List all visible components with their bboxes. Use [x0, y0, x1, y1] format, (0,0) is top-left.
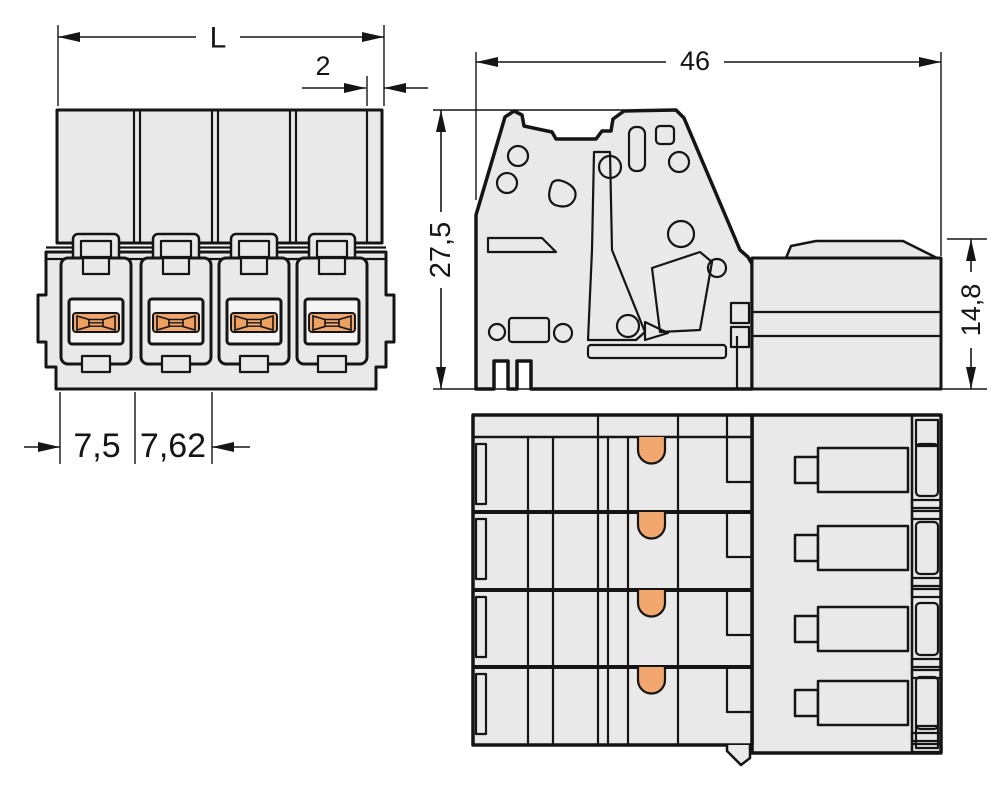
side-view-body	[476, 110, 752, 389]
dim-label-L: L	[210, 22, 227, 55]
bottom-view	[473, 415, 941, 765]
side-view	[476, 110, 941, 389]
dim-label-14-8: 14,8	[956, 284, 986, 337]
clamp-module-3	[219, 258, 289, 372]
dimension-L: L	[58, 22, 384, 107]
front-view	[38, 110, 394, 389]
dim-label-27-5: 27,5	[425, 222, 457, 278]
technical-drawing-page: L 2 7,5 7,62 27,5 46 14,8	[0, 0, 1000, 793]
dim-label-46: 46	[680, 46, 710, 76]
clamp-module-2	[141, 258, 211, 372]
side-view-cable-housing	[731, 241, 941, 389]
dimension-7-5-and-7-62: 7,5 7,62	[24, 392, 250, 465]
bottom-hook	[727, 745, 750, 765]
clamp-module-1	[61, 258, 131, 372]
dimension-2: 2	[302, 51, 428, 106]
front-view-upper-block	[57, 110, 382, 243]
dim-label-2: 2	[315, 51, 330, 81]
dim-label-7-5: 7,5	[73, 427, 120, 465]
clamp-module-4	[297, 258, 367, 372]
connector-technical-drawing: L 2 7,5 7,62 27,5 46 14,8	[0, 0, 1000, 793]
dim-label-7-62: 7,62	[140, 427, 206, 465]
bottom-view-body	[473, 415, 752, 745]
